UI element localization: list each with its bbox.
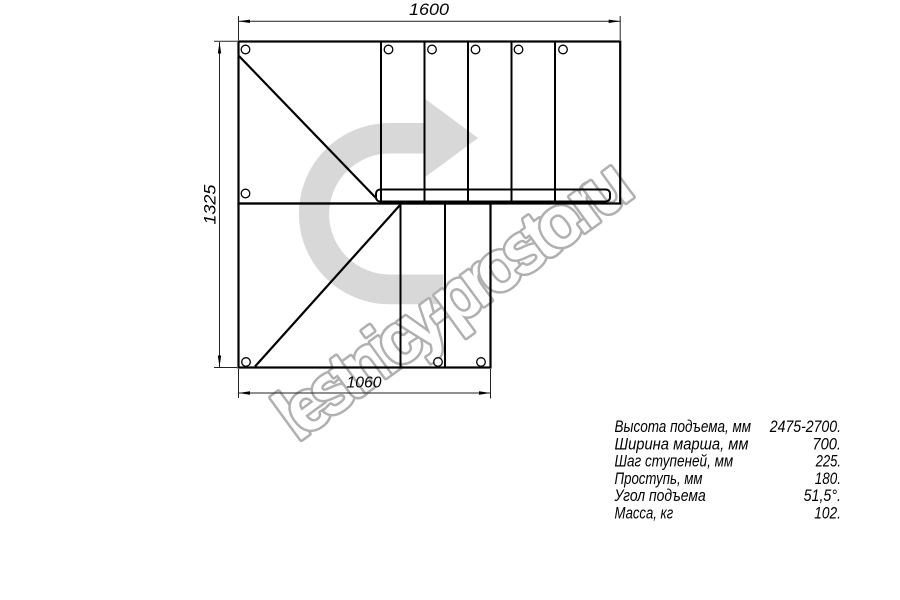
svg-text:225.: 225. (815, 452, 841, 471)
svg-text:Масса, кг: Масса, кг (615, 504, 674, 523)
svg-text:Шаг ступеней, мм: Шаг ступеней, мм (615, 452, 734, 471)
svg-text:51,5°.: 51,5°. (804, 486, 841, 505)
svg-text:102.: 102. (814, 504, 841, 523)
svg-text:2475-2700.: 2475-2700. (769, 417, 841, 436)
svg-text:Проступь, мм: Проступь, мм (615, 469, 703, 488)
svg-text:Ширина марша, мм: Ширина марша, мм (615, 434, 749, 453)
svg-text:180.: 180. (815, 469, 841, 488)
svg-text:Угол подъема: Угол подъема (614, 486, 706, 505)
svg-text:1600: 1600 (409, 1, 450, 19)
svg-text:1325: 1325 (202, 184, 220, 225)
svg-text:1060: 1060 (347, 375, 382, 392)
svg-text:700.: 700. (812, 434, 841, 453)
svg-text:Высота подъема, мм: Высота подъема, мм (615, 417, 752, 436)
